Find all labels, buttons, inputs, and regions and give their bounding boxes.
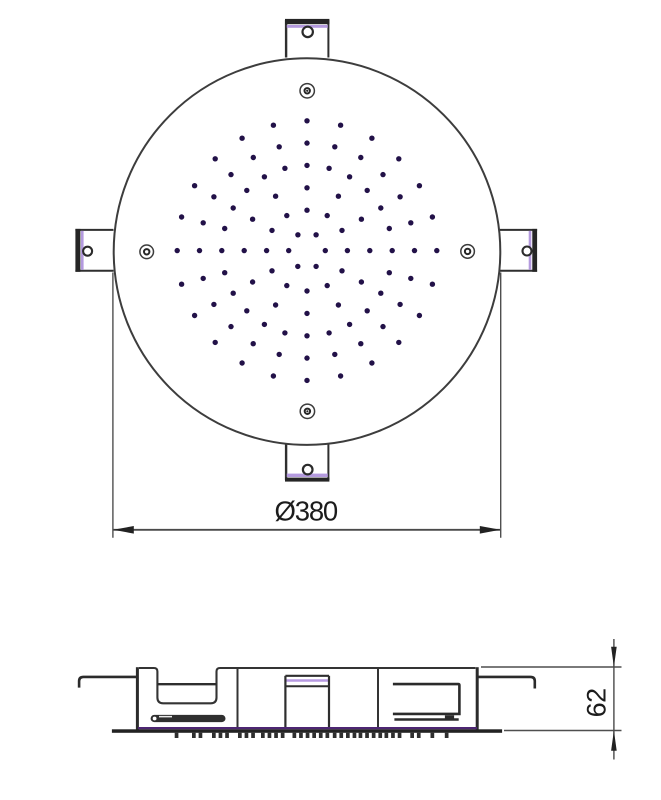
svg-text:62: 62 — [581, 688, 611, 717]
svg-text:Ø380: Ø380 — [275, 495, 338, 526]
